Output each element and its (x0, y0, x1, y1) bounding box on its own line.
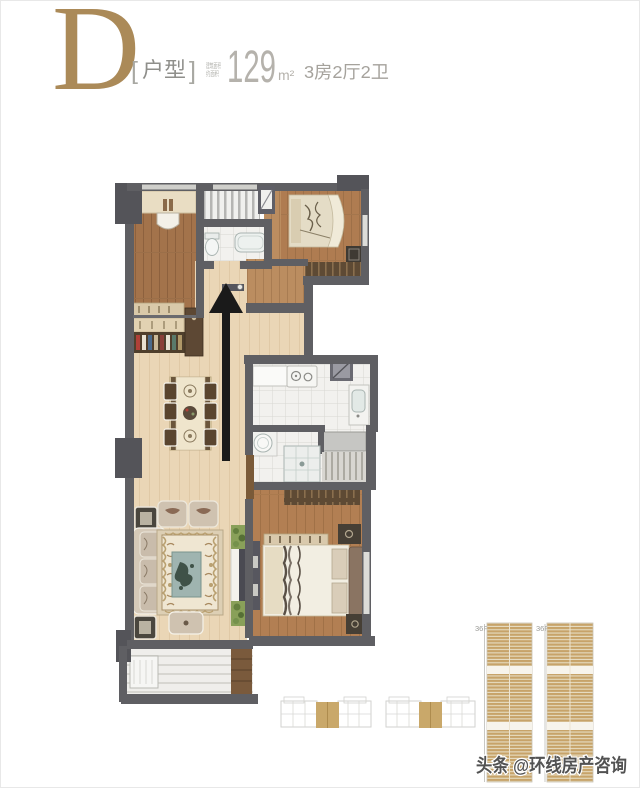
svg-text:m²: m² (278, 67, 295, 83)
svg-text:36F: 36F (475, 624, 488, 633)
svg-text:129: 129 (227, 41, 276, 92)
svg-text:[: [ (131, 57, 138, 85)
svg-text:头条 @环线房产咨询: 头条 @环线房产咨询 (476, 755, 627, 776)
svg-text:约面积: 约面积 (206, 69, 219, 78)
svg-text:3房2厅2卫: 3房2厅2卫 (304, 62, 389, 82)
svg-text:]: ] (189, 57, 196, 85)
svg-text:D: D (52, 0, 140, 116)
svg-text:建筑面积: 建筑面积 (206, 61, 221, 70)
svg-text:户型: 户型 (142, 59, 186, 82)
